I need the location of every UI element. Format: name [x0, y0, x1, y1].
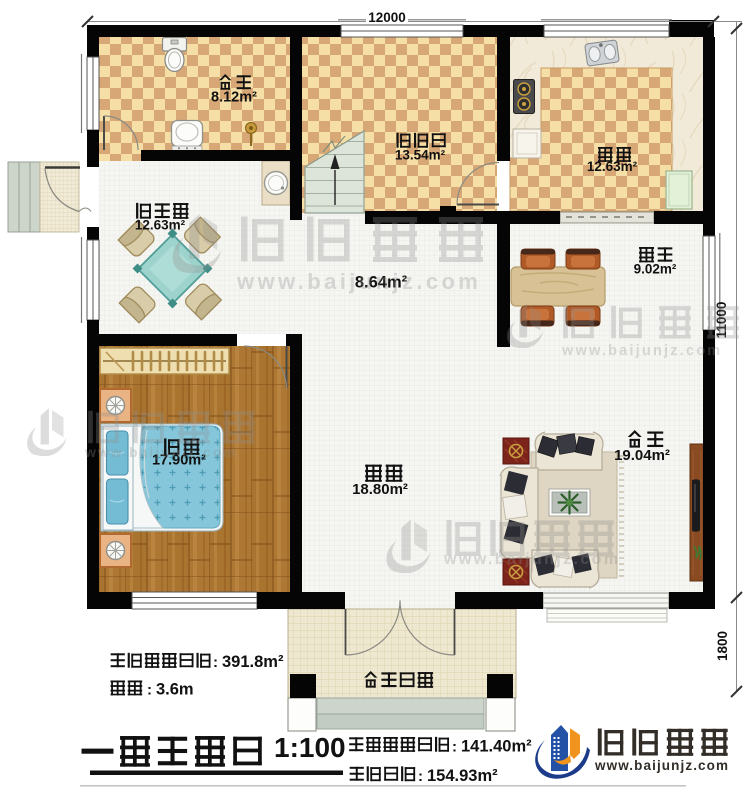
svg-text:1800: 1800 [715, 631, 730, 661]
svg-text:391.8m²: 391.8m² [222, 653, 284, 671]
svg-text:www.baijunjz.com: www.baijunjz.com [561, 343, 722, 359]
svg-text:18.80m²: 18.80m² [352, 481, 408, 498]
svg-text:www.baijunjz.com: www.baijunjz.com [84, 444, 238, 460]
svg-text:12.63m²: 12.63m² [135, 218, 186, 233]
svg-text:9.02m²: 9.02m² [634, 262, 677, 277]
svg-text:12.63m²: 12.63m² [587, 159, 638, 174]
svg-text::: : [418, 768, 423, 785]
svg-text:www.baijunjz.com: www.baijunjz.com [443, 551, 621, 568]
svg-text:154.93m²: 154.93m² [427, 767, 498, 785]
svg-text:12000: 12000 [368, 10, 406, 25]
svg-text:8.12m²: 8.12m² [211, 90, 257, 106]
svg-text:1:100: 1:100 [274, 732, 346, 763]
svg-text:19.04m²: 19.04m² [614, 447, 670, 464]
svg-text::: : [452, 739, 457, 756]
svg-text:141.40m²: 141.40m² [461, 738, 532, 756]
svg-text::: : [213, 654, 218, 671]
svg-text:www.baijunjz.com: www.baijunjz.com [594, 758, 729, 773]
svg-text:3.6m: 3.6m [156, 681, 194, 699]
svg-text::: : [147, 682, 152, 699]
svg-text:www.baijunjz.com: www.baijunjz.com [236, 269, 481, 294]
svg-text:13.54m²: 13.54m² [395, 148, 446, 163]
